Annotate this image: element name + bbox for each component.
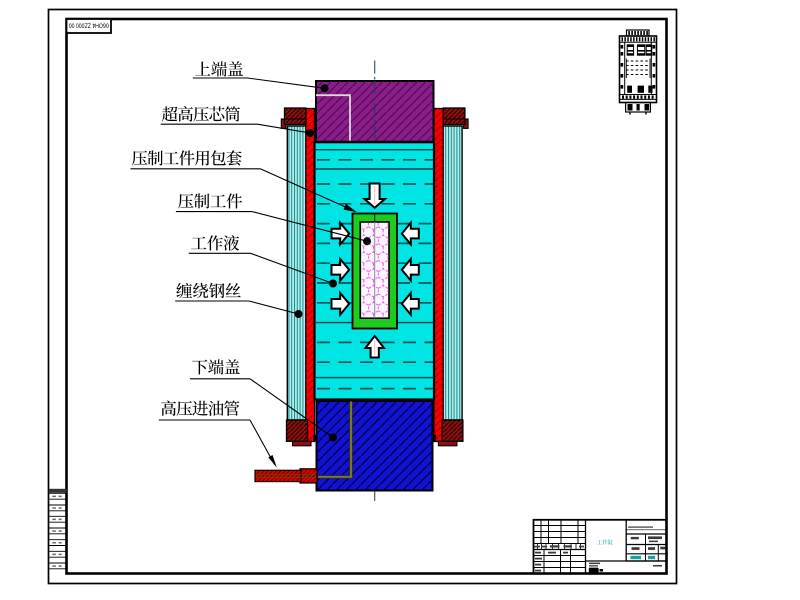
svg-text:06OH4 ZZ000 00: 06OH4 ZZ000 00 [68,22,108,29]
